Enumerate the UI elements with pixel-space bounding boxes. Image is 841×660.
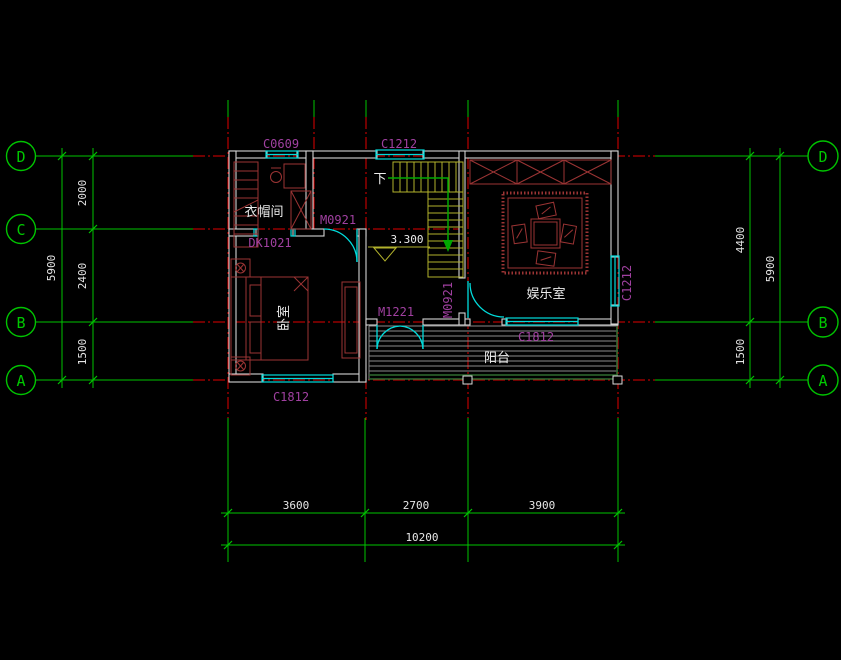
door-m0921-entertainment: [468, 281, 504, 318]
window-label-c1812-entertainment: C1812: [518, 330, 554, 344]
window-c1812-entertainment: [506, 318, 578, 325]
dim-right-seg-1: 4400: [734, 227, 747, 254]
door-label-m0921-bedroom: M0921: [320, 213, 356, 227]
axis-label-right-a: A: [818, 372, 827, 390]
stair-down-label: 下: [373, 172, 386, 187]
entertainment-cabinets: [470, 160, 611, 184]
grid-bubble-labels: D C B A D B A: [16, 148, 827, 390]
room-label-entertainment: 娱乐室: [526, 286, 565, 302]
axis-label-left-b: B: [16, 314, 25, 332]
cloakroom-desk-chair: [271, 164, 306, 188]
room-label-bedroom: 卧室: [276, 305, 292, 331]
grip-marker: [463, 376, 472, 384]
grip-marker: [613, 376, 622, 384]
window-label-c1212-right: C1212: [620, 265, 634, 301]
dim-left-seg-2: 2400: [76, 263, 89, 290]
axis-label-left-a: A: [16, 372, 25, 390]
dim-bottom-total: 10200: [405, 531, 438, 544]
window-label-c1812-bedroom: C1812: [273, 390, 309, 404]
window-label-c0609: C0609: [263, 137, 299, 151]
axis-label-right-d: D: [818, 148, 827, 166]
door-m0921-bedroom: [324, 229, 357, 262]
bed: [231, 277, 308, 360]
axis-label-left-c: C: [16, 221, 25, 239]
room-label-balcony: 阳台: [484, 351, 510, 366]
window-c1212-top: [376, 150, 424, 159]
grid-bubbles: [7, 141, 839, 395]
dim-right-seg-2: 1500: [734, 339, 747, 366]
carpet: [503, 193, 587, 273]
door-label-m1221: M1221: [378, 305, 414, 319]
chair: [536, 251, 556, 266]
dim-bottom-seg-3: 3900: [529, 499, 556, 512]
door-m1221-balcony: [377, 325, 423, 349]
cad-canvas: D C B A D B A: [0, 0, 841, 660]
wardrobe: [342, 282, 360, 358]
dim-left-seg-1: 2000: [76, 180, 89, 207]
dim-bottom-seg-2: 2700: [403, 499, 430, 512]
dim-right-total: 5900: [764, 256, 777, 283]
axis-label-right-b: B: [818, 314, 827, 332]
chair: [561, 224, 577, 244]
window-c0609: [266, 151, 298, 158]
door-label-m0921-entertainment: M0921: [441, 282, 455, 318]
room-label-cloakroom: 衣帽间: [244, 204, 283, 220]
chair: [536, 202, 556, 218]
game-table: [531, 219, 560, 248]
staircase: [393, 162, 463, 277]
elevation-value: 3.300: [390, 233, 423, 246]
chair: [512, 224, 527, 244]
window-label-c1212-top: C1212: [381, 137, 417, 151]
axis-label-left-d: D: [16, 148, 25, 166]
opening-label-dk1021: DK1021: [248, 236, 291, 250]
dim-bottom-seg-1: 3600: [283, 499, 310, 512]
elevation-marker: [368, 247, 430, 261]
floor-plan-drawing: D C B A D B A: [0, 0, 841, 660]
window-c1812-bedroom: [262, 375, 333, 382]
dim-left-total: 5900: [45, 255, 58, 282]
dim-left-seg-3: 1500: [76, 339, 89, 366]
